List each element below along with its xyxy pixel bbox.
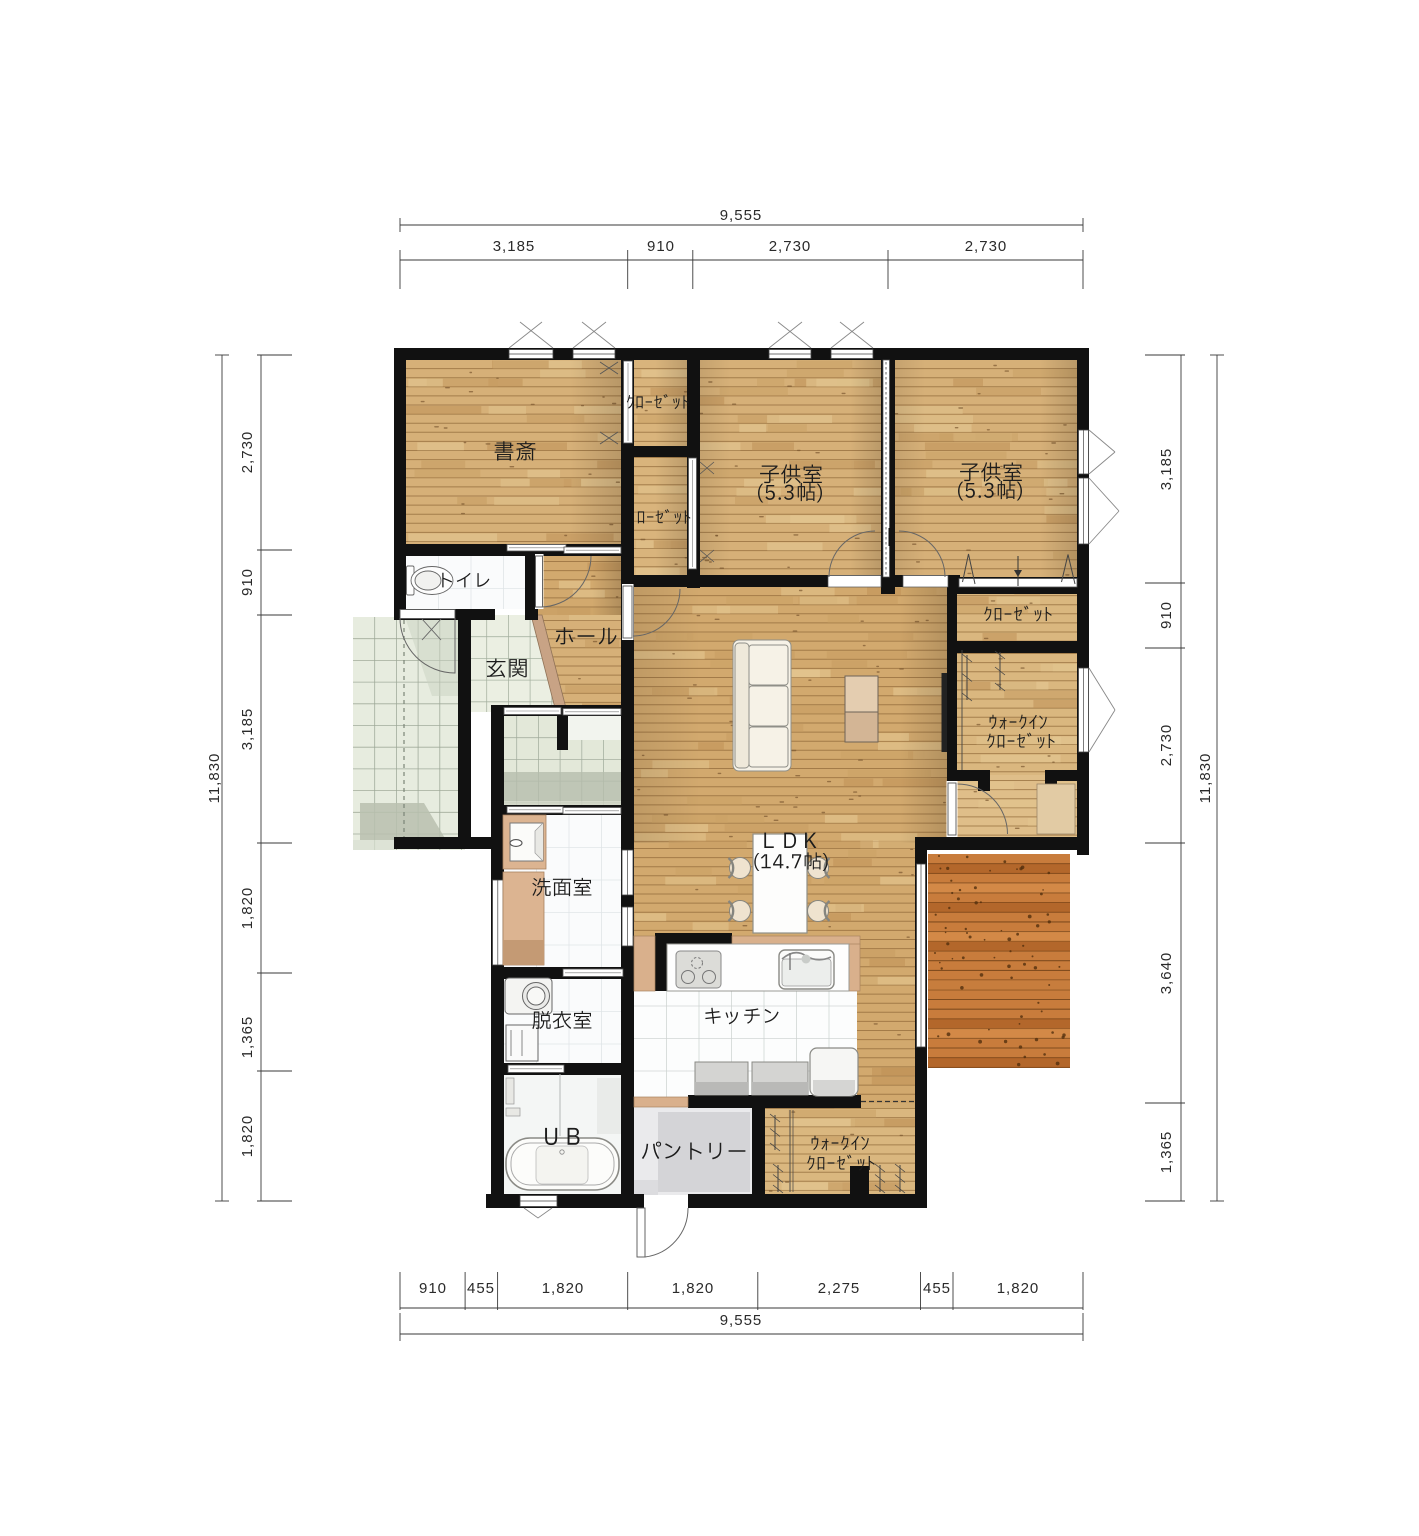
svg-text:9,555: 9,555 [720, 207, 763, 224]
svg-text:1,820: 1,820 [542, 1280, 585, 1297]
svg-text:1,820: 1,820 [239, 887, 256, 930]
svg-text:910: 910 [647, 238, 675, 255]
svg-text:2,730: 2,730 [239, 431, 256, 474]
svg-text:910: 910 [419, 1280, 447, 1297]
svg-text:3,185: 3,185 [1158, 448, 1175, 491]
svg-text:910: 910 [1158, 601, 1175, 629]
svg-text:3,185: 3,185 [239, 708, 256, 751]
svg-text:455: 455 [467, 1280, 495, 1297]
svg-text:1,820: 1,820 [997, 1280, 1040, 1297]
svg-text:2,730: 2,730 [769, 238, 812, 255]
svg-text:2,730: 2,730 [965, 238, 1008, 255]
svg-text:11,830: 11,830 [206, 753, 223, 804]
svg-text:455: 455 [923, 1280, 951, 1297]
svg-text:1,820: 1,820 [239, 1115, 256, 1158]
svg-text:2,730: 2,730 [1158, 724, 1175, 767]
svg-text:2,275: 2,275 [818, 1280, 861, 1297]
svg-text:11,830: 11,830 [1197, 753, 1214, 804]
svg-text:1,820: 1,820 [672, 1280, 715, 1297]
svg-text:1,365: 1,365 [239, 1016, 256, 1059]
svg-text:3,185: 3,185 [493, 238, 536, 255]
svg-text:3,640: 3,640 [1158, 952, 1175, 995]
svg-text:9,555: 9,555 [720, 1312, 763, 1329]
svg-text:1,365: 1,365 [1158, 1131, 1175, 1174]
svg-text:910: 910 [239, 568, 256, 596]
